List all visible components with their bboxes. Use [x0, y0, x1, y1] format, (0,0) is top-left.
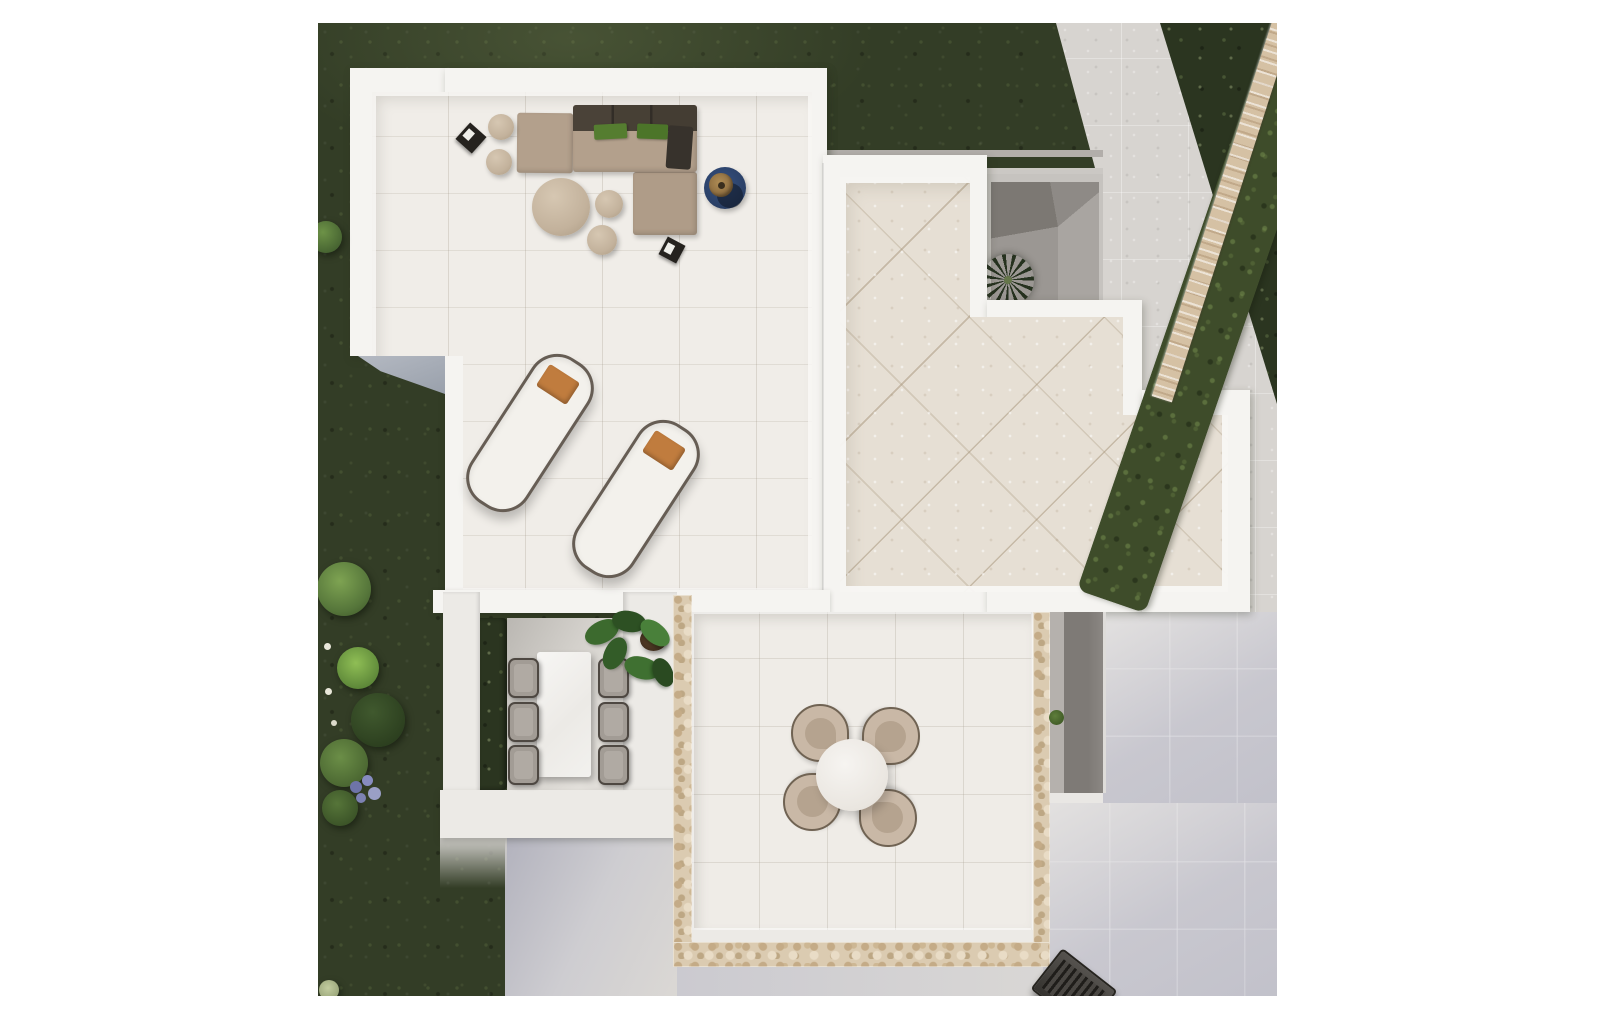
purple-flower	[362, 775, 373, 786]
patio-grass-bed	[480, 618, 507, 790]
lounger-pillow-1	[536, 364, 580, 405]
terrace-step-wall	[358, 356, 445, 394]
lower-terrace-stone-west	[673, 595, 692, 967]
passage-plant-icon	[1049, 710, 1064, 725]
sunken-passage	[1050, 612, 1106, 793]
paving-below-patio	[505, 835, 680, 996]
side-pouf-3	[488, 114, 514, 140]
flower-dot-3	[331, 720, 337, 726]
patio-south-wall	[440, 790, 677, 838]
patio-west-wall	[443, 592, 480, 813]
scene-canvas	[318, 23, 1277, 996]
sofa-dark-throw	[666, 125, 694, 170]
courtyard-palm-icon	[982, 254, 1034, 306]
pale-bush	[319, 980, 339, 996]
lower-terrace-stone-south	[673, 942, 1050, 967]
patio-chair-2	[508, 702, 539, 742]
rug-plant-core	[718, 182, 725, 189]
side-pouf-1	[595, 190, 623, 218]
patio-chair-3	[508, 745, 539, 785]
render-stage	[0, 0, 1600, 1024]
round-dining-table	[816, 739, 888, 811]
purple-flower	[350, 781, 362, 793]
lower-terrace-stone-east	[1033, 612, 1050, 967]
patio-chair-6	[598, 745, 629, 785]
green-pillow-2	[637, 123, 669, 139]
paving-bottom-strip	[677, 967, 1045, 996]
paving-patio-west-fade	[440, 838, 507, 888]
purple-flower-cluster	[348, 773, 384, 805]
patio-chair-1	[508, 658, 539, 698]
side-pouf-2	[587, 225, 617, 255]
passage-curb	[1050, 793, 1103, 803]
sofa-chaise	[633, 172, 697, 235]
side-pouf-4	[486, 149, 512, 175]
sofa-ottoman	[517, 113, 574, 173]
patio-dining-table	[537, 652, 591, 777]
patio-chair-5	[598, 702, 629, 742]
green-pillow-1	[594, 123, 628, 140]
garden-bush-3	[337, 647, 379, 689]
lounger-pillow-2	[642, 430, 686, 471]
coffee-table	[532, 178, 590, 236]
garden-bush-2	[318, 562, 371, 616]
paving-lower-right-upper	[1103, 612, 1277, 803]
outdoor-sofa-body	[573, 105, 697, 172]
garden-bush-1	[318, 221, 342, 253]
courtyard-lightwell	[985, 168, 1103, 306]
flower-dot-1	[324, 643, 331, 650]
purple-flower	[368, 787, 381, 800]
garden-bush-4	[351, 693, 405, 747]
terrace-seam	[822, 163, 824, 592]
flower-dot-2	[325, 688, 332, 695]
lower-terrace-curb	[677, 930, 1045, 942]
purple-flower	[356, 793, 366, 803]
